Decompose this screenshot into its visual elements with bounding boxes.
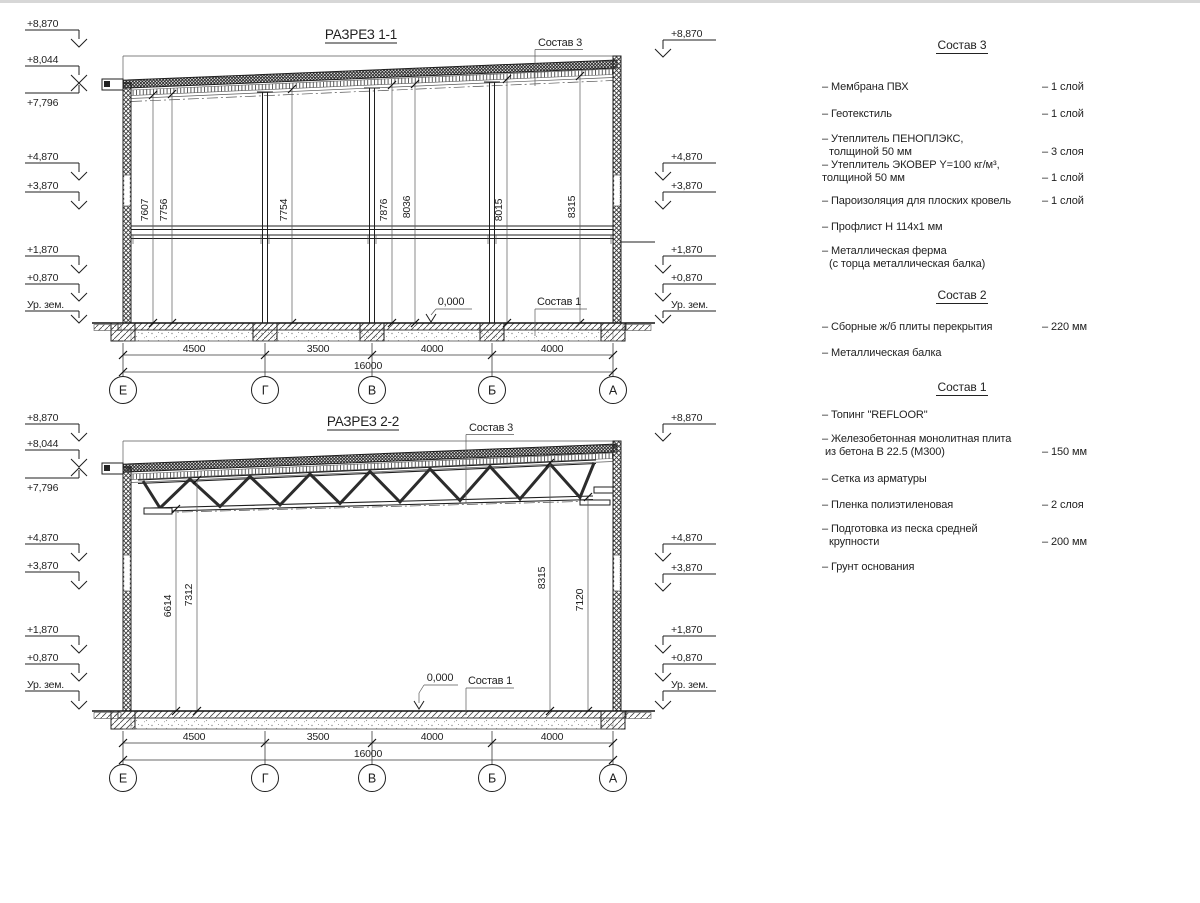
legend-item: – Утеплитель ЭКОВЕР Y=100 кг/м³, толщино…: [822, 159, 1102, 185]
section1-vertical-dims: 7607 7756 7754 7876 8036 8015 8315: [139, 72, 584, 327]
elevation-label: +4,870: [27, 151, 59, 163]
section2-floor: [92, 711, 655, 729]
legend-item: – Металлическая балка: [822, 347, 1102, 360]
legend-title-sostav3: Состав 3: [822, 39, 1102, 52]
axis-label: В: [368, 384, 376, 398]
section2-right-elevations: +8,870 +4,870 +3,870 +1,870 +0,870 Ур. з…: [655, 412, 716, 709]
elevation-label: +4,870: [27, 532, 59, 544]
elevation-label: +1,870: [671, 244, 703, 256]
span-dim: 4000: [421, 343, 444, 355]
section1-walls: [123, 56, 621, 323]
axis-label: Е: [119, 384, 127, 398]
legend-item: – Топинг "REFLOOR": [822, 409, 1102, 422]
elevation-label: +0,870: [671, 272, 703, 284]
section1-title: РАЗРЕЗ 1-1: [325, 27, 397, 42]
section1-dim-chains: 4500 3500 4000 4000 16000: [119, 343, 617, 377]
legend-item: – Профлист Н 114х1 мм: [822, 221, 1102, 234]
callout-sostav1: Состав 1: [468, 675, 512, 687]
axis-label: Е: [119, 772, 127, 786]
span-dim: 3500: [307, 343, 330, 355]
section1-floor: [92, 323, 655, 341]
callout-sostav1: Состав 1: [537, 296, 581, 308]
section2-left-elevations: +8,870 +8,044 +7,796 +4,870 +3,870 +1,87…: [25, 412, 87, 709]
legend-item: – Подготовка из песка средней крупности …: [822, 523, 1102, 549]
vdim-label: 7756: [158, 198, 170, 221]
vdim-label: 8315: [566, 195, 578, 218]
callout-zero: 0,000: [427, 672, 454, 684]
total-dim: 16000: [354, 360, 383, 372]
axis-label: Б: [488, 772, 496, 786]
legend-item: – Металлическая ферма (с торца металличе…: [822, 245, 1102, 271]
section-1-1: РАЗРЕЗ 1-1: [25, 18, 716, 404]
section2-dim-chains: 4500 3500 4000 4000 16000: [119, 731, 617, 765]
legend-item: – Железобетонная монолитная плита из бет…: [822, 433, 1102, 459]
elevation-label: +3,870: [27, 180, 59, 192]
axis-label: А: [609, 384, 618, 398]
elevation-label: +8,870: [27, 18, 59, 30]
materials-legend: Состав 3 – Мембрана ПВХ – 1 слой – Геоте…: [822, 39, 1102, 574]
section1-right-elevations: +8,870 +4,870 +3,870 +1,870 +0,870 Ур. з…: [655, 28, 716, 323]
elevation-label: +0,870: [27, 272, 59, 284]
legend-item: – Сборные ж/б плиты перекрытия – 220 мм: [822, 321, 1102, 334]
legend-item: – Сетка из арматуры: [822, 473, 1102, 486]
section1-mezzanine: [131, 226, 655, 244]
axis-label: Б: [488, 384, 496, 398]
axis-label: Г: [262, 384, 269, 398]
elevation-label: Ур. зем.: [671, 299, 708, 311]
span-dim: 4000: [541, 343, 564, 355]
section1-axes: Е Г В Б А: [110, 377, 627, 404]
vdim-label: 8315: [536, 566, 548, 589]
legend-item: – Утеплитель ПЕНОПЛЭКС, толщиной 50 мм –…: [822, 133, 1102, 159]
span-dim: 3500: [307, 731, 330, 743]
legend-item: – Геотекстиль – 1 слой: [822, 108, 1102, 121]
span-dim: 4000: [541, 731, 564, 743]
section1-roof: [102, 60, 617, 102]
elevation-label: +4,870: [671, 151, 703, 163]
legend-item: – Пленка полиэтиленовая – 2 слоя: [822, 499, 1102, 512]
legend-title-sostav1: Состав 1: [822, 381, 1102, 394]
elevation-label: +7,796: [27, 97, 59, 109]
elevation-label: +3,870: [671, 562, 703, 574]
elevation-label: +0,870: [27, 652, 59, 664]
elevation-label: +8,870: [27, 412, 59, 424]
elevation-label: Ур. зем.: [27, 679, 64, 691]
callout-sostav3: Состав 3: [469, 422, 513, 434]
vdim-label: 6614: [162, 594, 174, 617]
span-dim: 4500: [183, 343, 206, 355]
elevation-label: +8,870: [671, 412, 703, 424]
elevation-label: +8,044: [27, 438, 59, 450]
elevation-label: +0,870: [671, 652, 703, 664]
elevation-label: Ур. зем.: [671, 679, 708, 691]
section-2-2: РАЗРЕЗ 2-2: [25, 412, 716, 792]
elevation-label: +7,796: [27, 482, 59, 494]
elevation-label: Ур. зем.: [27, 299, 64, 311]
axis-label: Г: [262, 772, 269, 786]
axis-label: А: [609, 772, 618, 786]
elevation-label: +3,870: [27, 560, 59, 572]
vdim-label: 8015: [493, 198, 505, 221]
elevation-label: +1,870: [27, 244, 59, 256]
section2-axes: Е Г В Б А: [110, 765, 627, 792]
vdim-label: 7312: [183, 583, 195, 606]
vdim-label: 7607: [139, 198, 151, 221]
section1-left-elevations: +8,870 +8,044 +7,796 +4,870 +3,870 +1,87…: [25, 18, 87, 323]
elevation-label: +1,870: [671, 624, 703, 636]
drawing-sheet: { "titles": { "s1": "РАЗРЕЗ 1-1", "s2": …: [0, 0, 1200, 903]
callout-sostav3: Состав 3: [538, 37, 582, 49]
vdim-label: 7754: [278, 198, 290, 221]
elevation-label: +4,870: [671, 532, 703, 544]
legend-item: – Грунт основания: [822, 561, 1102, 574]
vdim-label: 7120: [574, 588, 586, 611]
vdim-label: 8036: [401, 195, 413, 218]
elevation-label: +8,044: [27, 54, 59, 66]
vdim-label: 7876: [378, 198, 390, 221]
elevation-label: +3,870: [671, 180, 703, 192]
total-dim: 16000: [354, 748, 383, 760]
span-dim: 4500: [183, 731, 206, 743]
elevation-label: +1,870: [27, 624, 59, 636]
span-dim: 4000: [421, 731, 444, 743]
elevation-label: +8,870: [671, 28, 703, 40]
legend-item: – Пароизоляция для плоских кровель – 1 с…: [822, 195, 1102, 208]
axis-label: В: [368, 772, 376, 786]
callout-zero: 0,000: [438, 296, 465, 308]
legend-title-sostav2: Состав 2: [822, 289, 1102, 302]
legend-item: – Мембрана ПВХ – 1 слой: [822, 81, 1102, 94]
section2-title: РАЗРЕЗ 2-2: [327, 414, 399, 429]
